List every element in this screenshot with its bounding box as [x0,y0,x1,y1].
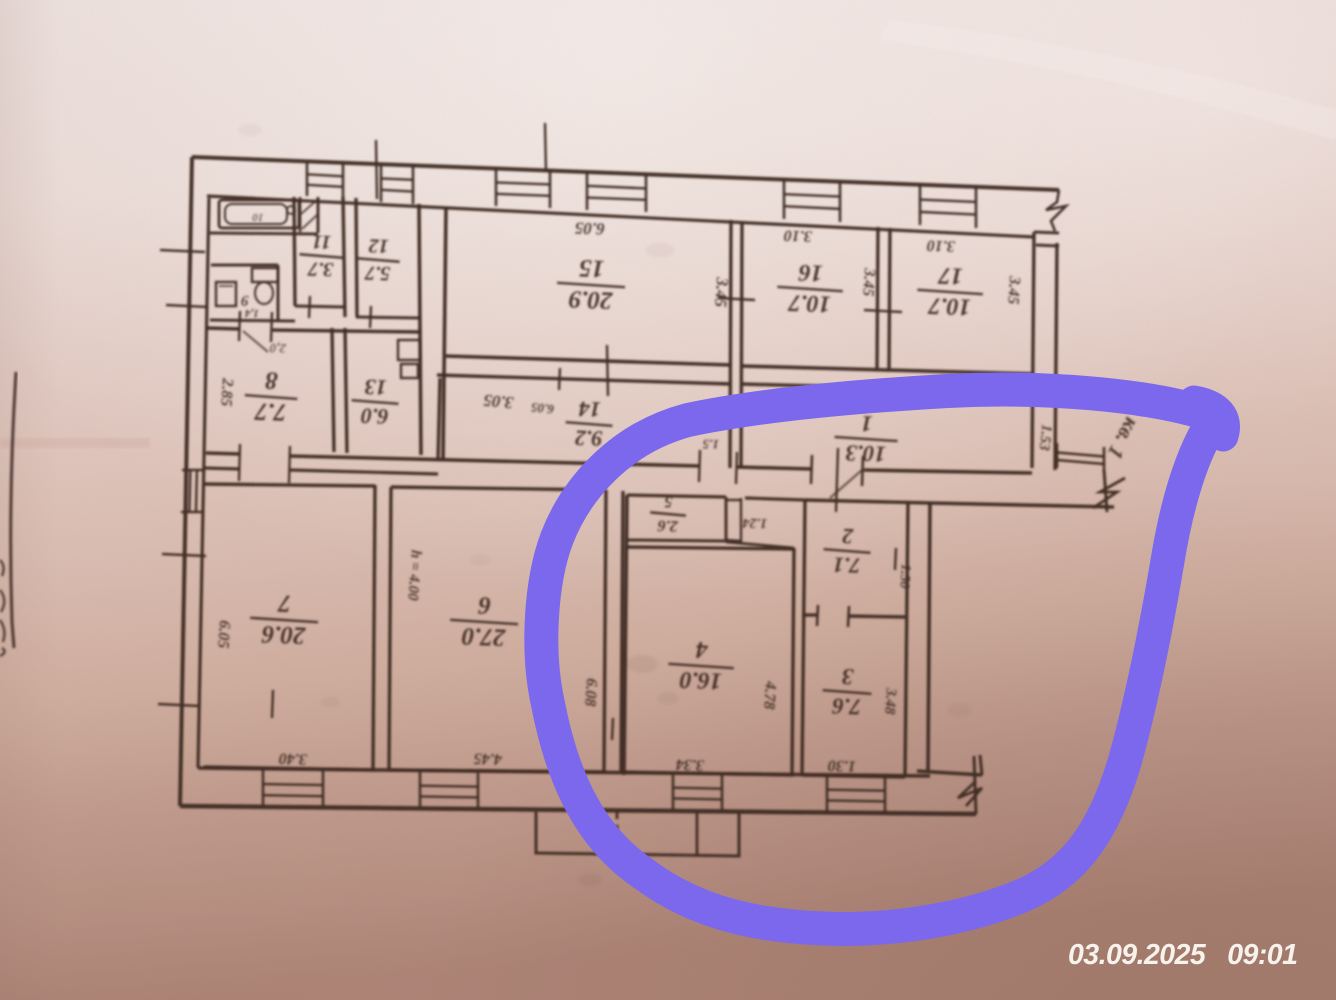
svg-text:03.09.2025 09:01: 03.09.2025 09:01 [1068,939,1297,971]
